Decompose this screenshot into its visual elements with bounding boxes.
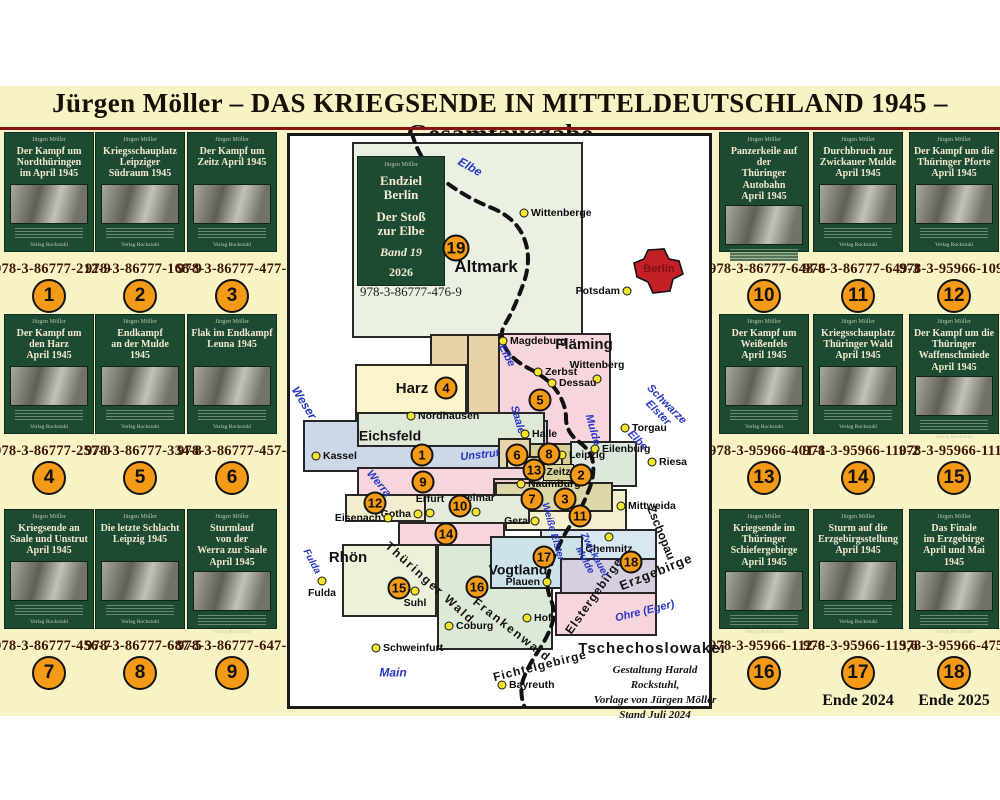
book-publisher: Verlag Rockstuhl <box>913 629 995 635</box>
book-title: Die letzte Schlacht Leipzig 1945 <box>99 523 181 558</box>
book-blurb-text <box>824 226 892 240</box>
book-tile: Jürgen MöllerDas Finale im Erzgebirge Ap… <box>910 510 998 725</box>
city-label: Kassel <box>323 450 357 462</box>
book-cover: Jürgen MöllerSturm auf die Erzgebirgsste… <box>814 510 902 628</box>
book-number-badge: 6 <box>215 461 249 495</box>
book-blurb-text <box>15 226 83 240</box>
book-publisher: Verlag Rockstuhl <box>191 242 273 248</box>
book-title: Der Kampf um Nordthüringen im April 1945 <box>8 146 90 181</box>
book-title: Kriegsende an Saale und Unstrut April 19… <box>8 523 90 558</box>
book-blurb-text <box>198 613 266 627</box>
book-author: Jürgen Möller <box>191 137 273 143</box>
book-isbn: 978-3-86777-649-3 <box>803 261 913 278</box>
book-cover: Jürgen MöllerDas Finale im Erzgebirge Ap… <box>910 510 998 628</box>
book-isbn: 978-3-95966-111-9 <box>899 443 1000 460</box>
book-blurb-text <box>15 603 83 617</box>
city-label: Bayreuth <box>509 679 555 691</box>
city-dot <box>605 533 614 542</box>
map-marker: 16 <box>466 576 489 599</box>
map-marker: 2 <box>570 464 593 487</box>
book-cover-photo <box>915 376 993 416</box>
map-marker: 7 <box>521 488 544 511</box>
book-title: Der Kampf um den Harz April 1945 <box>8 328 90 363</box>
city-label: Eilenburg <box>602 443 650 455</box>
book-author: Jürgen Möller <box>723 514 805 520</box>
map-credit-text: Gestaltung Harald Rockstuhl, Vorlage von… <box>592 663 718 722</box>
central-map: Jürgen Möller Endziel Berlin Der Stoß zu… <box>287 133 712 709</box>
book-isbn: 978-3-95966-113,6 <box>803 638 913 655</box>
book-release-note: Ende 2024 <box>808 692 908 710</box>
map-marker: 10 <box>449 495 472 518</box>
book-cover-photo <box>193 366 271 406</box>
city-label: Torgau <box>632 422 667 434</box>
book-blurb-text <box>15 408 83 422</box>
map-marker: 9 <box>412 471 435 494</box>
book-blurb-text <box>198 408 266 422</box>
book-publisher: Verlag Rockstuhl <box>191 629 273 635</box>
city-dot <box>384 514 393 523</box>
city-label: Erfurt <box>416 493 445 505</box>
book-number-badge: 13 <box>747 461 781 495</box>
book-author: Jürgen Möller <box>817 319 899 325</box>
band19-year: 2026 <box>360 265 442 280</box>
book-number-badge: 2 <box>123 279 157 313</box>
city-label: Coburg <box>456 620 493 632</box>
book-author: Jürgen Möller <box>99 137 181 143</box>
book-tile: Jürgen MöllerEndkampf an der Mulde 1945V… <box>96 315 184 530</box>
book-publisher: Verlag Rockstuhl <box>913 242 995 248</box>
map-marker: 11 <box>569 505 592 528</box>
book-blurb-text <box>730 613 798 627</box>
city-dot <box>523 614 532 623</box>
band19-volume: Band 19 <box>360 245 442 260</box>
band19-author: Jürgen Möller <box>360 162 442 168</box>
city-dot <box>517 480 526 489</box>
city-label: Dessau <box>559 377 596 389</box>
book-blurb-text <box>106 226 174 240</box>
city-dot <box>372 644 381 653</box>
book-number-badge: 17 <box>841 656 875 690</box>
book-blurb-text <box>730 247 798 261</box>
city-label: Potsdam <box>576 285 620 297</box>
city-label: Nordhausen <box>418 410 479 422</box>
book-cover: Jürgen MöllerDer Kampf um Weißenfels Apr… <box>720 315 808 433</box>
city-dot <box>499 337 508 346</box>
book-tile: Jürgen MöllerKriegsschauplatz Thüringer … <box>814 315 902 530</box>
book-isbn: 978-3-95966-110-2 <box>803 443 913 460</box>
region-label: Tschechoslowakei <box>578 641 725 657</box>
map-marker: 17 <box>533 546 556 569</box>
river-label: Main <box>379 667 406 680</box>
city-dot <box>411 587 420 596</box>
city-dot <box>520 209 529 218</box>
city-dot <box>445 622 454 631</box>
book-tile: Jürgen MöllerKriegsende im Thüringer Sch… <box>720 510 808 725</box>
book-publisher: Verlag Rockstuhl <box>817 424 899 430</box>
book-number-badge: 5 <box>123 461 157 495</box>
band19-cover: Jürgen Möller Endziel Berlin Der Stoß zu… <box>358 157 444 285</box>
book-title: Der Kampf um Zeitz April 1945 <box>191 146 273 181</box>
region-label: Eichsfeld <box>359 429 421 444</box>
city-dot <box>617 502 626 511</box>
book-cover: Jürgen MöllerDer Kampf um die Thüringer … <box>910 315 998 433</box>
book-cover: Jürgen MöllerDer Kampf um den Harz April… <box>5 315 93 433</box>
book-release-note: Ende 2025 <box>904 692 1000 710</box>
book-cover-photo <box>101 561 179 601</box>
band19-isbn: 978-3-86777-476-9 <box>360 284 462 300</box>
city-label: Wittenberg <box>570 359 625 371</box>
book-tile: Jürgen MöllerDer Kampf um die Thüringer … <box>910 315 998 530</box>
book-cover-photo <box>725 571 803 611</box>
book-cover-photo <box>101 366 179 406</box>
book-author: Jürgen Möller <box>191 514 273 520</box>
book-author: Jürgen Möller <box>99 319 181 325</box>
book-title: Der Kampf um Weißenfels April 1945 <box>723 328 805 363</box>
city-dot <box>531 517 540 526</box>
city-label: Schweinfurt <box>383 642 443 654</box>
book-title: Sturm auf die Erzgebirgsstellung April 1… <box>817 523 899 558</box>
book-title: Endkampf an der Mulde 1945 <box>99 328 181 363</box>
map-marker: 1 <box>411 444 434 467</box>
city-label: Gera <box>504 515 528 527</box>
book-cover: Jürgen MöllerDer Kampf um Zeitz April 19… <box>188 133 276 251</box>
book-title: Durchbruch zur Zwickauer Mulde April 194… <box>817 146 899 181</box>
book-number-badge: 11 <box>841 279 875 313</box>
book-publisher: Verlag Rockstuhl <box>723 629 805 635</box>
book-number-badge: 12 <box>937 279 971 313</box>
book-tile: Jürgen MöllerSturmlauf von der Werra zur… <box>188 510 276 725</box>
book-publisher: Verlag Rockstuhl <box>99 619 181 625</box>
region-label: Rhön <box>329 550 367 566</box>
book-cover-photo <box>10 184 88 224</box>
book-title: Kriegsende im Thüringer Schiefergebirge … <box>723 523 805 568</box>
book-author: Jürgen Möller <box>723 319 805 325</box>
book-cover-photo <box>819 184 897 224</box>
city-label: Plauen <box>506 576 540 588</box>
book-number-badge: 1 <box>32 279 66 313</box>
book-cover: Jürgen MöllerPanzerkeile auf der Thüring… <box>720 133 808 251</box>
book-number-badge: 8 <box>123 656 157 690</box>
book-number-badge: 7 <box>32 656 66 690</box>
region-label: Altmark <box>454 258 517 276</box>
map-marker: 15 <box>388 577 411 600</box>
book-title: Flak im Endkampf Leuna 1945 <box>191 328 273 363</box>
map-marker: 12 <box>364 492 387 515</box>
city-dot <box>534 368 543 377</box>
book-blurb-text <box>730 408 798 422</box>
book-title: Der Kampf um die Thüringer Pforte April … <box>913 146 995 181</box>
city-dot <box>621 424 630 433</box>
book-blurb-text <box>198 226 266 240</box>
map-marker: 13 <box>523 459 546 482</box>
city-dot <box>521 430 530 439</box>
book-author: Jürgen Möller <box>817 514 899 520</box>
region-label: Harz <box>396 381 429 397</box>
book-cover: Jürgen MöllerKriegsschauplatz Leipziger … <box>96 133 184 251</box>
book-number-badge: 3 <box>215 279 249 313</box>
map-marker: 19 <box>443 235 470 262</box>
book-title: Panzerkeile auf der Thüringer Autobahn A… <box>723 146 805 202</box>
city-label: Fulda <box>308 587 336 599</box>
book-cover-photo <box>10 366 88 406</box>
city-dot <box>623 287 632 296</box>
city-label: Riesa <box>659 456 687 468</box>
book-cover-photo <box>193 184 271 224</box>
book-number-badge: 16 <box>747 656 781 690</box>
book-isbn: 978-3-86777-647-9 <box>177 638 287 655</box>
book-author: Jürgen Möller <box>913 319 995 325</box>
map-marker: 5 <box>529 389 552 412</box>
book-author: Jürgen Möller <box>8 514 90 520</box>
book-cover-photo <box>725 205 803 245</box>
book-cover-photo <box>725 366 803 406</box>
book-cover-photo <box>819 561 897 601</box>
city-dot <box>312 452 321 461</box>
band19-title-2: Der Stoß zur Elbe <box>360 210 442 239</box>
book-number-badge: 18 <box>937 656 971 690</box>
book-tile: Jürgen MöllerKriegsende an Saale und Uns… <box>5 510 93 725</box>
book-tile: Jürgen MöllerDer Kampf um Weißenfels Apr… <box>720 315 808 530</box>
book-publisher: Verlag Rockstuhl <box>8 242 90 248</box>
book-cover: Jürgen MöllerDer Kampf um Nordthüringen … <box>5 133 93 251</box>
city-dot <box>498 681 507 690</box>
map-marker: 18 <box>620 551 643 574</box>
map-marker: 4 <box>435 377 458 400</box>
book-cover-photo <box>819 366 897 406</box>
book-cover-photo <box>10 561 88 601</box>
book-number-badge: 15 <box>937 461 971 495</box>
band19-title-1: Endziel Berlin <box>360 174 442 203</box>
book-cover: Jürgen MöllerSturmlauf von der Werra zur… <box>188 510 276 628</box>
book-cover: Jürgen MöllerKriegsschauplatz Thüringer … <box>814 315 902 433</box>
book-author: Jürgen Möller <box>913 514 995 520</box>
city-dot <box>414 510 423 519</box>
book-tile: Jürgen MöllerFlak im Endkampf Leuna 1945… <box>188 315 276 530</box>
book-author: Jürgen Möller <box>191 319 273 325</box>
city-dot <box>648 458 657 467</box>
book-publisher: Verlag Rockstuhl <box>8 424 90 430</box>
book-publisher: Verlag Rockstuhl <box>817 242 899 248</box>
city-dot <box>318 577 327 586</box>
city-dot <box>548 379 557 388</box>
book-tile: Jürgen MöllerDie letzte Schlacht Leipzig… <box>96 510 184 725</box>
book-cover: Jürgen MöllerKriegsende an Saale und Uns… <box>5 510 93 628</box>
book-tile: Jürgen MöllerDer Kampf um den Harz April… <box>5 315 93 530</box>
book-cover: Jürgen MöllerFlak im Endkampf Leuna 1945… <box>188 315 276 433</box>
book-title: Der Kampf um die Thüringer Waffenschmied… <box>913 328 995 373</box>
book-blurb-text <box>920 613 988 627</box>
book-cover: Jürgen MöllerKriegsende im Thüringer Sch… <box>720 510 808 628</box>
book-publisher: Verlag Rockstuhl <box>191 424 273 430</box>
city-label: Leipzig <box>569 449 605 461</box>
city-label: Halle <box>532 428 557 440</box>
book-cover: Jürgen MöllerEndkampf an der Mulde 1945V… <box>96 315 184 433</box>
map-marker: 14 <box>435 523 458 546</box>
book-cover: Jürgen MöllerDer Kampf um die Thüringer … <box>910 133 998 251</box>
book-blurb-text <box>106 408 174 422</box>
book-title: Kriegsschauplatz Thüringer Wald April 19… <box>817 328 899 363</box>
book-tile: Jürgen MöllerSturm auf die Erzgebirgsste… <box>814 510 902 725</box>
book-cover-photo <box>915 571 993 611</box>
book-blurb-text <box>920 418 988 432</box>
city-label: Magdeburg <box>510 335 567 347</box>
book-publisher: Verlag Rockstuhl <box>913 434 995 440</box>
book-cover: Jürgen MöllerDie letzte Schlacht Leipzig… <box>96 510 184 628</box>
book-title: Sturmlauf von der Werra zur Saale April … <box>191 523 273 568</box>
book-number-badge: 9 <box>215 656 249 690</box>
book-cover-photo <box>193 571 271 611</box>
city-dot <box>472 508 481 517</box>
city-dot <box>543 578 552 587</box>
berlin-label: Berlin <box>643 263 674 275</box>
book-publisher: Verlag Rockstuhl <box>723 424 805 430</box>
city-dot <box>407 412 416 421</box>
book-author: Jürgen Möller <box>8 137 90 143</box>
book-publisher: Verlag Rockstuhl <box>8 619 90 625</box>
city-label: Mittweida <box>628 500 676 512</box>
book-author: Jürgen Möller <box>8 319 90 325</box>
title-underline <box>0 127 1000 130</box>
book-author: Jürgen Möller <box>913 137 995 143</box>
book-isbn: 978-3-95966-109-6 <box>899 261 1000 278</box>
book-blurb-text <box>106 603 174 617</box>
city-label: Suhl <box>404 597 427 609</box>
book-publisher: Verlag Rockstuhl <box>817 619 899 625</box>
book-title: Das Finale im Erzgebirge April und Mai 1… <box>913 523 995 568</box>
book-isbn: 978-3-95966-475-2 <box>899 638 1000 655</box>
book-blurb-text <box>920 226 988 240</box>
book-cover: Jürgen MöllerDurchbruch zur Zwickauer Mu… <box>814 133 902 251</box>
book-cover-photo <box>101 184 179 224</box>
book-author: Jürgen Möller <box>817 137 899 143</box>
city-label: Hof <box>534 612 552 624</box>
book-author: Jürgen Möller <box>99 514 181 520</box>
book-number-badge: 10 <box>747 279 781 313</box>
book-isbn: 978-3-86777-477-2 <box>177 261 287 278</box>
city-label: Wittenberge <box>531 207 592 219</box>
book-author: Jürgen Möller <box>723 137 805 143</box>
book-blurb-text <box>824 603 892 617</box>
book-publisher: Verlag Rockstuhl <box>99 242 181 248</box>
book-publisher: Verlag Rockstuhl <box>99 424 181 430</box>
book-cover-photo <box>915 184 993 224</box>
book-number-badge: 14 <box>841 461 875 495</box>
city-dot <box>426 509 435 518</box>
book-title: Kriegsschauplatz Leipziger Südraum 1945 <box>99 146 181 181</box>
book-number-badge: 4 <box>32 461 66 495</box>
book-blurb-text <box>824 408 892 422</box>
book-isbn: 978-3-86777-457-4 <box>177 443 287 460</box>
